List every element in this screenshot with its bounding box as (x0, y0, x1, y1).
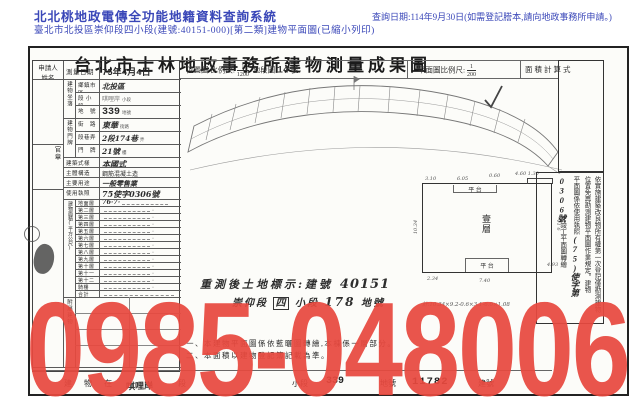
dim-top-1: 3.10 (425, 176, 436, 182)
address-group-label: 建物門牌 (63, 118, 75, 157)
floor-leader-1 (104, 206, 150, 212)
floor-leader-7 (104, 248, 150, 254)
floor-plan: 平 台 平 台 壹層 3.10 6.05 0.60 4.60 1.30 10.3… (422, 183, 552, 273)
watermark-phone-number: 0985-048006 (26, 283, 629, 408)
floor-value-4: · (99, 227, 181, 234)
location-scale-num: 1 (241, 64, 244, 70)
floor-label-8: 第九層 (75, 255, 99, 262)
floor-value-5: · (99, 234, 181, 241)
street-row-value: 東華街路 (99, 118, 181, 131)
lane-row-label: 段巷弄 (75, 131, 99, 144)
floor-leader-0 (122, 199, 168, 205)
floor-label-5: 第六層 (75, 234, 99, 241)
lot-number: 339 (102, 107, 120, 118)
section-value: 唭哩岸 (102, 97, 120, 103)
structure-value: 鋼筋混凝土造 (99, 167, 181, 177)
location-map (180, 74, 570, 174)
dim-top-3: 0.60 (489, 173, 500, 179)
floor-leader-9 (104, 262, 150, 268)
floor-leader-3 (104, 220, 150, 226)
location-group-label: 建物坐落 (63, 79, 75, 118)
structure-label: 主體構造 (63, 167, 99, 177)
floor-area-0: 76·7· (102, 199, 120, 206)
floor-value-1: · (99, 206, 181, 213)
lane-value: 2段174巷 (102, 134, 138, 143)
seal-label: 官章 (33, 144, 63, 189)
section-suffix: 小段 (122, 97, 131, 102)
floor-leader-8 (104, 255, 150, 261)
section-row-label: 段 小段 (75, 92, 99, 105)
lane-suffix: 弄 (140, 137, 145, 142)
floor-label-6: 第七層 (75, 241, 99, 248)
door-suffix: 樓 (122, 150, 127, 155)
lot-row-label: 地 號 (75, 105, 99, 118)
checkmark-icon (485, 86, 502, 107)
usage-text: 一般零售業 (102, 179, 137, 187)
style-text: 本國式 (102, 159, 126, 167)
floor-label-3: 第四層 (75, 220, 99, 227)
dim-left: 10.34 (413, 220, 419, 234)
street-name: 東華 (102, 120, 118, 130)
plan-scale-num: 1 (470, 64, 473, 70)
location-row-label: 鄉鎮市區 (75, 79, 99, 92)
floor-label-7: 第八層 (75, 248, 99, 255)
plan-bottom-platform: 平 台 (465, 258, 509, 272)
style-label: 建築式樣 (63, 157, 99, 167)
lot-row-value: 339地號 (99, 105, 181, 118)
floor-value-7: · (99, 248, 181, 255)
usage-value: 一般零售業 (99, 177, 181, 187)
permit-number: 75使字0306號 (102, 189, 159, 199)
page: 北北桃地政電傳全功能地籍資料查詢系統 查詢日期:114年9月30日(如需登記謄本… (0, 0, 640, 408)
round-seal-stamp (24, 226, 40, 242)
style-value: 本國式 (99, 157, 181, 167)
floor-value-0: 76·7· (99, 199, 181, 206)
location-row-value: 北投區 (99, 79, 181, 92)
door-row-label: 門 牌 (75, 144, 99, 157)
floor-label-4: 第五層 (75, 227, 99, 234)
dim-top-2: 6.05 (457, 176, 468, 182)
plan-top-platform: 平 台 (453, 185, 497, 193)
document-subtitle: 臺北市北投區崇仰段四小段(建號:40151-000)[第二類]建物平面圖(已縮小… (34, 22, 375, 36)
floor-label-0: 地面層 (75, 199, 99, 206)
floor-value-9: · (99, 262, 181, 269)
floor-label-9: 第十層 (75, 262, 99, 269)
floor-value-2: · (99, 213, 181, 220)
plan-room-label: 壹層 (480, 214, 493, 234)
survey-date-value: 75年4月4日 (99, 61, 181, 79)
applicant-label: 申請人 姓名 (33, 61, 63, 79)
door-number: 21號 (102, 147, 120, 156)
floor-value-6: · (99, 241, 181, 248)
street-row-label: 街 路 (75, 118, 99, 131)
query-date: 查詢日期:114年9月30日(如需登記謄本,請向地政事務所申請。) (372, 10, 612, 23)
floor-leader-4 (104, 227, 150, 233)
sidebar-col3-prefix: 平面圖係依使用執照 (572, 176, 579, 235)
permit-label: 使用執照 (63, 187, 99, 199)
permit-value: 75使字0306號 (99, 187, 181, 199)
section-row-value: 唭哩岸小段 (99, 92, 181, 105)
floor-value-8: · (99, 255, 181, 262)
floor-value-3: · (99, 220, 181, 227)
township-value: 北投區 (102, 82, 125, 91)
lot-suffix: 地號 (122, 110, 131, 115)
usage-label: 主要用途 (63, 177, 99, 187)
scale-row-topline (180, 60, 558, 61)
sidebar-col3-suffix: 竣工平面圖轉繪 (559, 222, 566, 268)
survey-date-label: 測量日期 (63, 61, 99, 79)
sidebar-empty-box (558, 60, 604, 172)
floor-leader-10 (104, 269, 150, 275)
floor-leader-6 (104, 241, 150, 247)
floor-label-1: 第二層 (75, 206, 99, 213)
applicant-value-cell (33, 79, 63, 144)
door-row-value: 21號樓 (99, 144, 181, 157)
north-flag-icon (354, 76, 360, 83)
floor-leader-5 (104, 234, 150, 240)
floor-label-2: 第三層 (75, 213, 99, 220)
street-suffix: 街路 (120, 124, 129, 129)
lane-row-value: 2段174巷弄 (99, 131, 181, 144)
floor-leader-2 (104, 213, 150, 219)
